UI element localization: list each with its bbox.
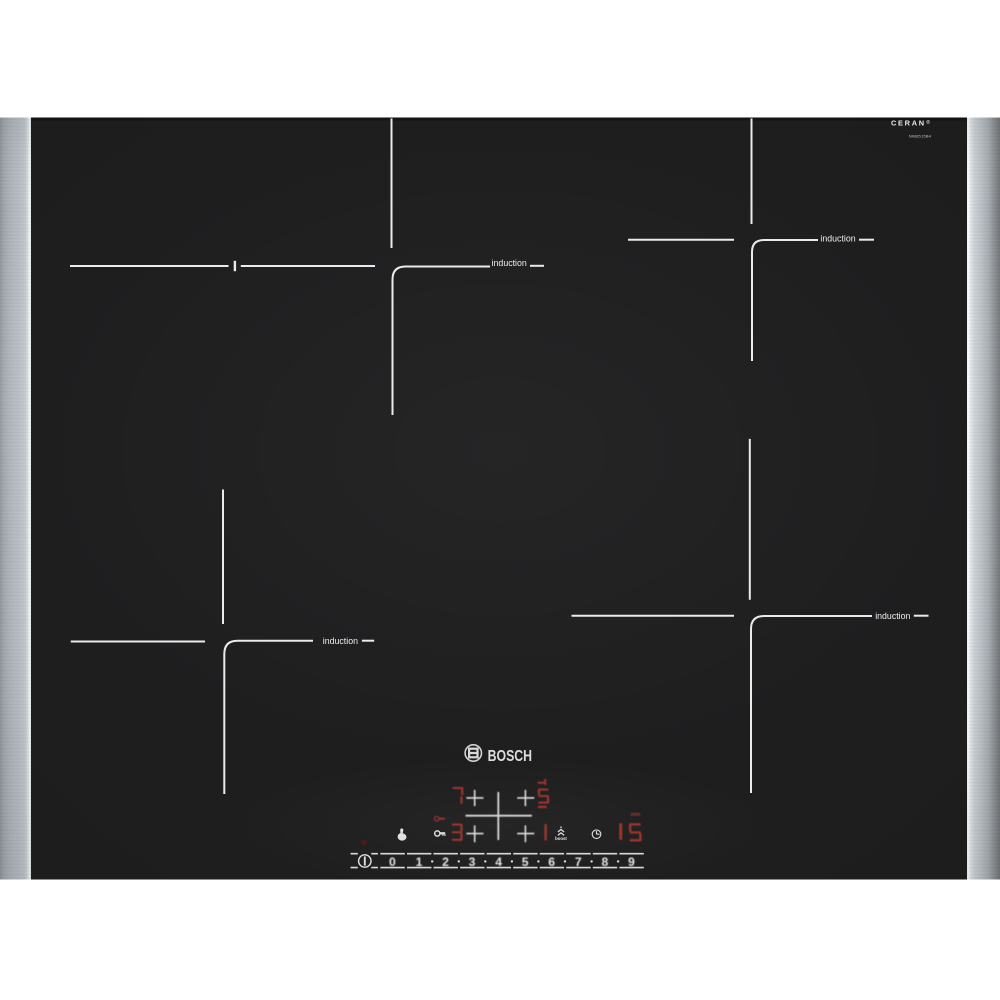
svg-text:induction: induction (875, 611, 910, 621)
svg-text:boost: boost (555, 836, 567, 841)
svg-text:min: min (631, 812, 641, 818)
svg-text:induction: induction (323, 636, 358, 646)
svg-text:®: ® (926, 119, 930, 126)
svg-text:5: 5 (522, 855, 529, 869)
svg-text:3: 3 (469, 855, 476, 869)
svg-text:1: 1 (416, 855, 423, 869)
svg-text:BOSCH: BOSCH (488, 747, 532, 765)
svg-text:7: 7 (575, 855, 582, 869)
svg-text:8: 8 (602, 855, 609, 869)
svg-text:induction: induction (820, 234, 855, 244)
svg-text:9: 9 (628, 855, 635, 869)
svg-text:4: 4 (495, 855, 502, 869)
svg-text:6: 6 (548, 855, 555, 869)
svg-text:CERAN: CERAN (891, 119, 926, 128)
svg-text:2: 2 (442, 855, 449, 869)
svg-text:induction: induction (492, 258, 527, 268)
svg-text:NIB6515B4: NIB6515B4 (909, 133, 932, 138)
svg-text:0: 0 (389, 855, 396, 869)
